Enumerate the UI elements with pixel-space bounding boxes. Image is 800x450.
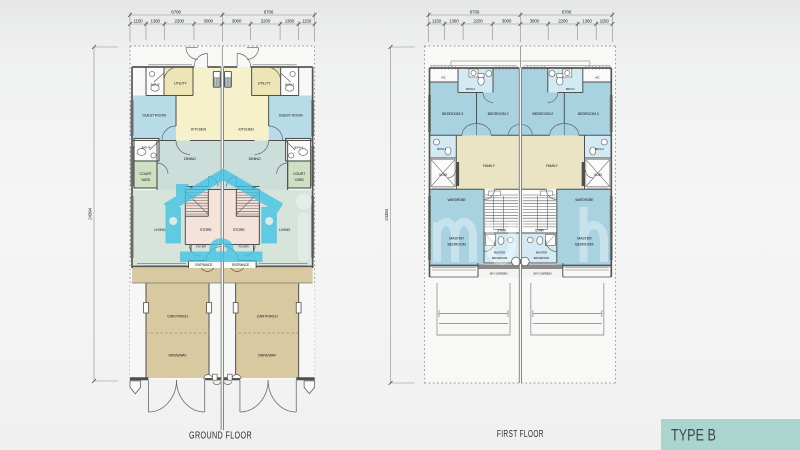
svg-text:ENTRANCE: ENTRANCE [232, 263, 250, 267]
svg-text:UP: UP [189, 185, 193, 189]
svg-text:GROUND FLOOR: GROUND FLOOR [189, 431, 252, 442]
svg-text:BATH 2: BATH 2 [466, 87, 475, 91]
svg-text:6706: 6706 [171, 9, 181, 14]
svg-text:MASTER: MASTER [536, 250, 547, 254]
svg-text:3000: 3000 [502, 18, 512, 23]
svg-text:24394: 24394 [88, 207, 93, 219]
svg-text:BATH 5: BATH 5 [285, 83, 294, 87]
svg-text:6706: 6706 [562, 9, 572, 14]
svg-text:DINING: DINING [249, 157, 261, 161]
svg-text:COURT: COURT [293, 172, 306, 176]
svg-text:1360: 1360 [285, 18, 295, 23]
svg-text:STAIR: STAIR [535, 228, 544, 232]
svg-text:BEDROOM 2: BEDROOM 2 [488, 112, 509, 116]
svg-text:DRIVEWAY: DRIVEWAY [168, 354, 187, 358]
svg-text:VOID: VOID [439, 173, 448, 177]
svg-text:2200: 2200 [174, 18, 184, 23]
svg-text:GUEST ROOM: GUEST ROOM [142, 113, 166, 117]
svg-text:BEDROOM: BEDROOM [447, 242, 465, 246]
svg-text:STORE: STORE [233, 228, 246, 232]
svg-text:1150: 1150 [432, 18, 442, 23]
svg-text:UTILITY: UTILITY [174, 81, 187, 85]
svg-text:MASTER: MASTER [577, 237, 592, 241]
svg-text:BATHROOM: BATHROOM [492, 256, 508, 260]
svg-text:CAR PORCH: CAR PORCH [167, 315, 188, 319]
svg-text:2200: 2200 [261, 18, 271, 23]
svg-text:3000: 3000 [232, 18, 242, 23]
svg-text:BATH 4: BATH 4 [294, 146, 303, 150]
svg-text:LIVING: LIVING [279, 228, 290, 232]
svg-text:DINING: DINING [184, 157, 196, 161]
svg-text:BEDROOM: BEDROOM [575, 242, 593, 246]
svg-text:6706: 6706 [264, 9, 274, 14]
svg-text:BATHROOM: BATHROOM [534, 256, 550, 260]
svg-text:YARD: YARD [141, 178, 151, 182]
svg-text:BATH 3: BATH 3 [437, 147, 446, 151]
svg-text:1360: 1360 [449, 18, 459, 23]
svg-text:ENTRANCE: ENTRANCE [196, 263, 214, 267]
svg-text:WARDROBE: WARDROBE [575, 198, 594, 202]
svg-text:KITCHEN: KITCHEN [239, 127, 255, 131]
svg-text:FIRST FLOOR: FIRST FLOOR [497, 429, 544, 440]
svg-text:1150: 1150 [133, 18, 143, 23]
svg-text:TYPE B: TYPE B [671, 426, 716, 445]
svg-text:1360: 1360 [582, 18, 592, 23]
svg-text:GUEST ROOM: GUEST ROOM [279, 113, 303, 117]
svg-text:3000: 3000 [203, 18, 213, 23]
svg-text:2200: 2200 [473, 18, 483, 23]
svg-text:STAIR: STAIR [497, 228, 506, 232]
svg-text:BATH 2: BATH 2 [566, 87, 575, 91]
svg-text:COURT: COURT [139, 172, 152, 176]
svg-text:1360: 1360 [150, 18, 160, 23]
svg-text:YARD: YARD [294, 178, 304, 182]
svg-text:BATH 5: BATH 5 [151, 83, 160, 87]
svg-text:UP: UP [252, 185, 256, 189]
svg-text:STORE: STORE [200, 228, 213, 232]
svg-text:2200: 2200 [558, 18, 568, 23]
svg-text:FAMILY: FAMILY [546, 164, 559, 168]
svg-text:BEDROOM 3: BEDROOM 3 [578, 112, 599, 116]
svg-text:UTILITY: UTILITY [258, 81, 271, 85]
svg-text:LIVING: LIVING [154, 228, 165, 232]
svg-text:BATH 4: BATH 4 [142, 146, 151, 150]
svg-text:BEDROOM 3: BEDROOM 3 [442, 112, 463, 116]
svg-text:SKY GARDEN: SKY GARDEN [533, 272, 551, 276]
svg-text:3000: 3000 [530, 18, 540, 23]
svg-text:CAR PORCH: CAR PORCH [257, 315, 278, 319]
svg-text:1150: 1150 [600, 18, 610, 23]
svg-text:6706: 6706 [470, 9, 480, 14]
svg-text:WARDROBE: WARDROBE [447, 198, 466, 202]
svg-text:VOID: VOID [594, 173, 603, 177]
svg-text:SKY GARDEN: SKY GARDEN [489, 272, 507, 276]
svg-text:FOYER: FOYER [239, 245, 250, 249]
svg-text:MASTER: MASTER [449, 237, 464, 241]
svg-text:BEDROOM 2: BEDROOM 2 [532, 112, 553, 116]
svg-text:FOYER: FOYER [196, 245, 207, 249]
svg-text:DRIVEWAY: DRIVEWAY [258, 354, 277, 358]
svg-text:BATH 3: BATH 3 [595, 147, 604, 151]
svg-text:FAMILY: FAMILY [483, 164, 496, 168]
svg-text:1150: 1150 [302, 18, 312, 23]
svg-text:KITCHEN: KITCHEN [191, 127, 207, 131]
svg-text:MASTER: MASTER [494, 250, 505, 254]
svg-text:24394: 24394 [384, 208, 389, 220]
